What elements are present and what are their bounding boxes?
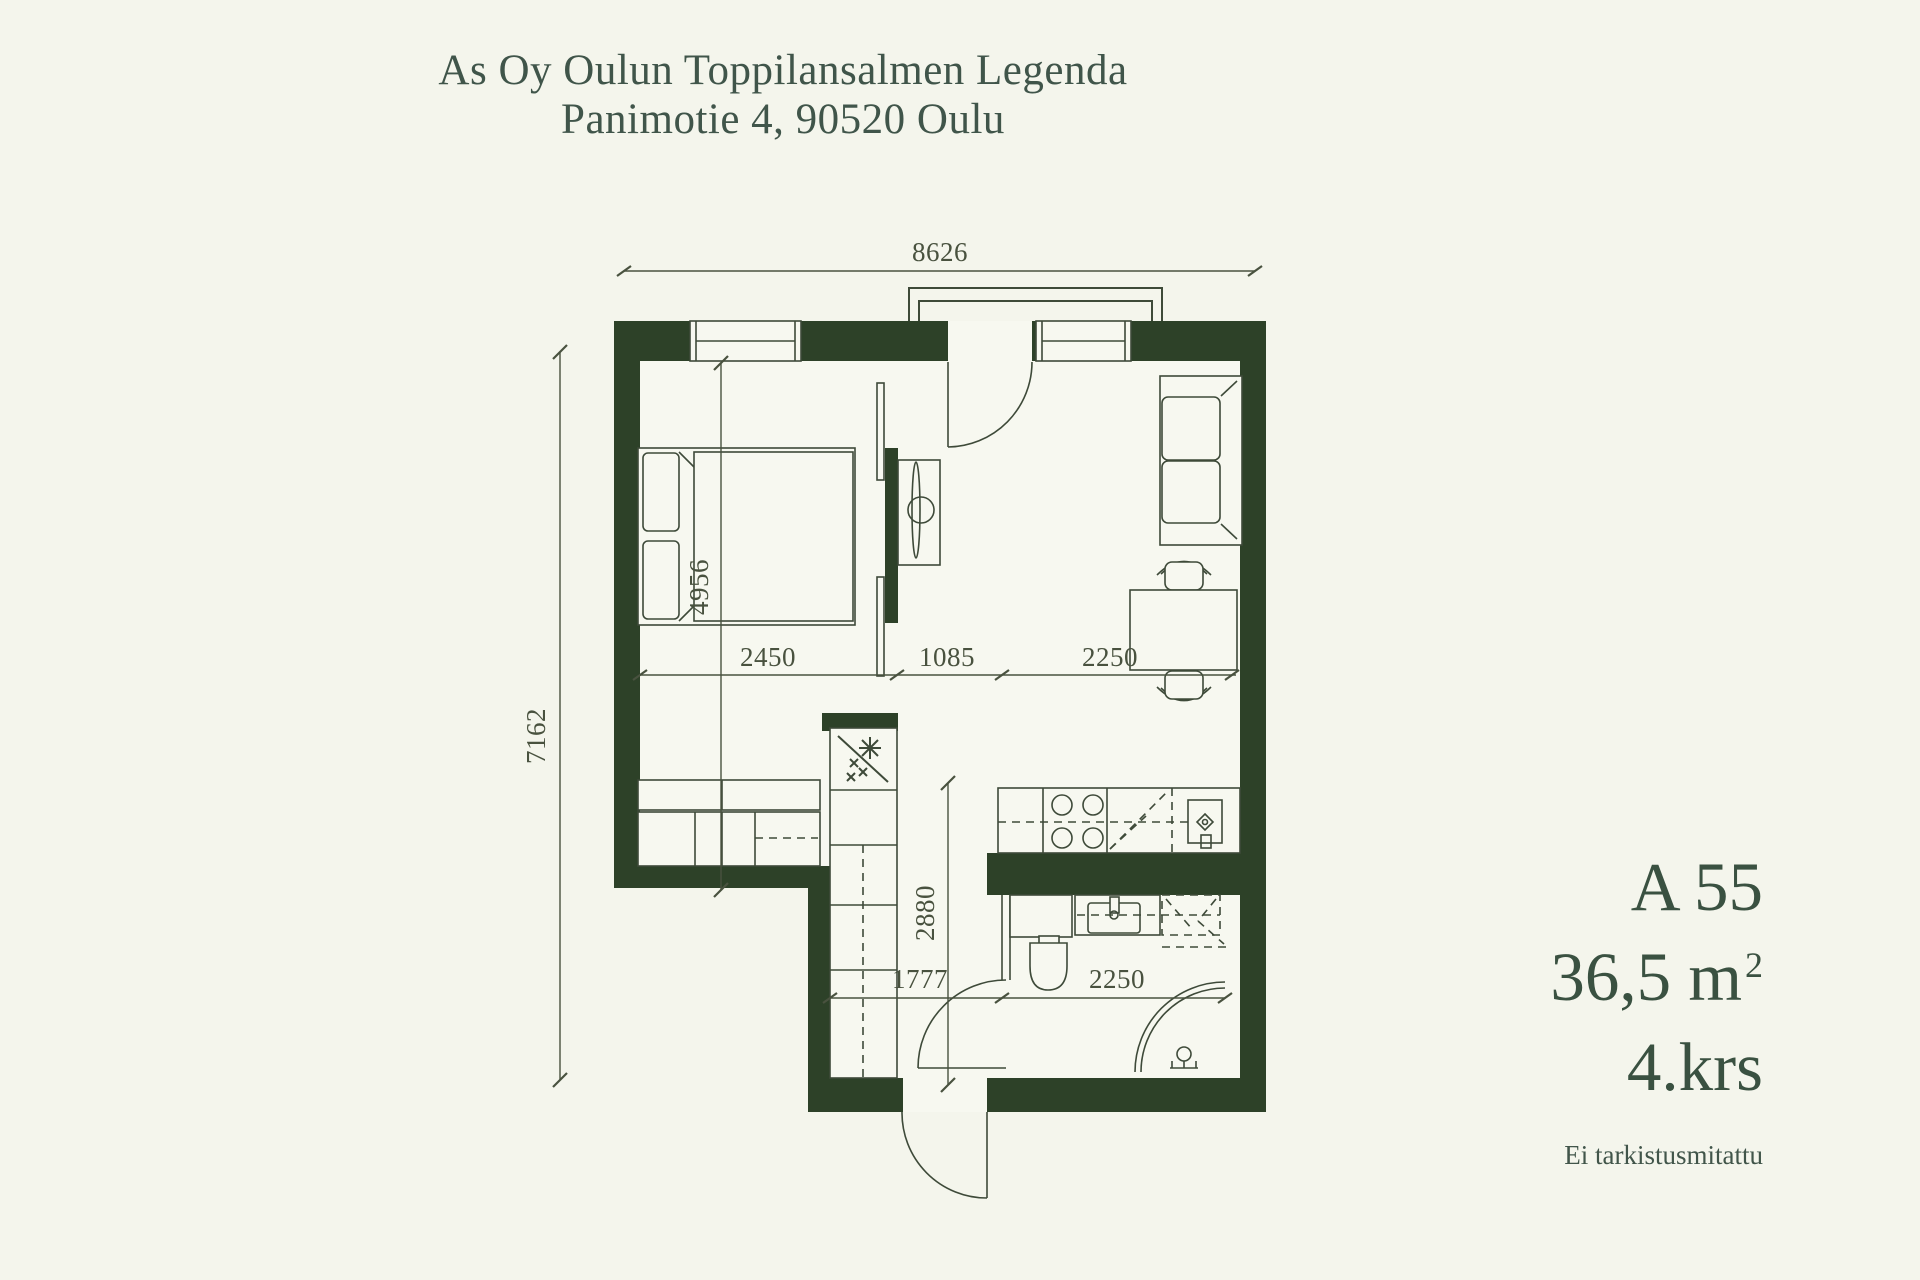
svg-text:1777: 1777 (892, 964, 948, 994)
toilet (1030, 936, 1067, 990)
entry-door (902, 1078, 987, 1198)
window-living (1036, 321, 1131, 361)
window-bedroom (690, 321, 801, 361)
dimension-top-width: 8626 (617, 237, 1262, 276)
svg-text:8626: 8626 (912, 237, 968, 267)
measurement-note: Ei tarkistusmitattu (1550, 1140, 1763, 1170)
apartment-info: A 55 36,5 m2 4.krs Ei tarkistusmitattu (1550, 842, 1763, 1170)
area-superscript: 2 (1745, 945, 1763, 985)
svg-text:2250: 2250 (1089, 964, 1145, 994)
kitchen-bath-divider-wall (987, 853, 1240, 895)
svg-text:2250: 2250 (1082, 642, 1138, 672)
dining-chair-top (1157, 562, 1211, 591)
balcony-outline (909, 288, 1162, 322)
dimension-left-height: 7162 (521, 345, 567, 1087)
hall-closet (830, 728, 897, 1078)
tv-partition-wall (885, 448, 898, 623)
svg-text:4956: 4956 (684, 559, 714, 615)
sofa (1160, 376, 1242, 545)
tv-console (898, 460, 940, 565)
apartment-floor: 4.krs (1550, 1022, 1763, 1112)
svg-text:2450: 2450 (740, 642, 796, 672)
apartment-area: 36,5 m2 (1550, 932, 1763, 1022)
svg-text:2880: 2880 (910, 885, 940, 941)
washing-machine (1010, 895, 1072, 937)
dresser (638, 780, 820, 866)
svg-text:1085: 1085 (919, 642, 975, 672)
dining-table (1130, 590, 1237, 670)
apartment-number: A 55 (1550, 842, 1763, 932)
kitchen-counter (998, 788, 1240, 853)
bed (638, 448, 855, 625)
svg-text:7162: 7162 (521, 708, 551, 764)
